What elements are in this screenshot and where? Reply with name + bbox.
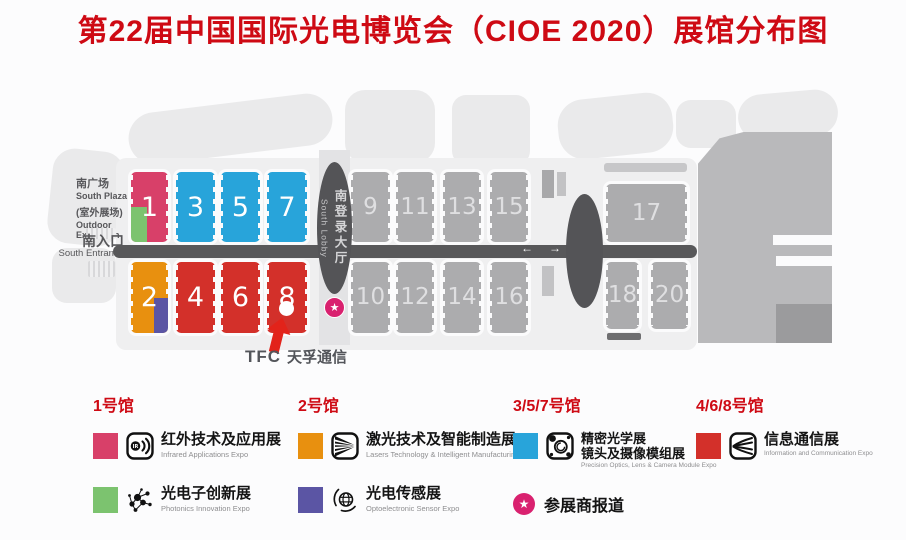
hall-4: 4 [176,262,215,333]
hall-16: 16 [490,262,528,333]
legend-title-en: Optoelectronic Sensor Expo [366,504,459,513]
info-comm-expo-icon [729,432,757,460]
legend-title-cn: 红外技术及应用展 [161,432,281,449]
color-swatch [93,433,118,459]
legend-title-cn: 信息通信展 [764,432,873,449]
south-plaza-label: 南广场 South Plaza [76,178,127,201]
color-swatch [298,487,323,513]
legend-title-en: Information and Communication Expo [764,450,873,457]
hall-20: 20 [651,262,688,329]
hall-17: 17 [606,184,687,242]
legend-item-infrared: IR 红外技术及应用展 Infrared Applications Expo [93,432,308,486]
tfc-logo-name: 天孚通信 [287,346,347,367]
color-swatch [696,433,721,459]
roof-outline-shape [555,90,676,162]
hall-11: 11 [396,172,434,242]
color-swatch [298,433,323,459]
optics-expo-icon [546,432,574,460]
exhibitor-checkin-note: ★ 参展商报道 [513,492,728,516]
legend-item-photonics: 光电子创新展 Photonics Innovation Expo [93,486,308,540]
legend-item-info-comm: 信息通信展 Information and Communication Expo [696,432,906,486]
south-entrance-label: 南入口 South Entrance [40,233,124,260]
color-swatch [513,433,538,459]
legend-column-hall-468: 4/6/8号馆 信息通信展 Information and Communicat… [696,392,906,486]
infrared-expo-icon: IR [126,432,154,460]
hall-2: 2 [131,262,168,333]
hall-18: 18 [606,262,639,329]
legend-heading: 4/6/8号馆 [696,392,906,416]
hall-10: 10 [351,262,390,333]
service-block [557,172,566,196]
building-notch [776,256,832,266]
color-swatch [93,487,118,513]
legend-column-hall-2: 2号馆 激光技术及智能制造展 Lasers Technology & Intel… [298,392,513,540]
legend-title-en: Infrared Applications Expo [161,450,281,459]
svg-text:IR: IR [133,444,139,450]
roof-outline-shape [452,95,530,165]
hall-14: 14 [443,262,481,333]
checkin-star-badge: ★ [324,297,345,318]
legend-title-en: Photonics Innovation Expo [161,504,251,513]
service-block [542,266,554,296]
hall-3: 3 [176,172,215,242]
floor-map: 南广场 South Plaza (室外展场) Outdoor Exhibitio… [0,60,906,385]
legend-item-laser: 激光技术及智能制造展 Lasers Technology & Intellige… [298,432,513,486]
south-lobby: South Lobby 南登录大厅 [317,162,352,294]
south-lobby-label-cn: 南登录大厅 [331,189,350,267]
tfc-logo-mark: TFC [245,347,281,367]
laser-expo-icon [331,432,359,460]
roof-outline-shape [126,91,336,168]
south-lobby-label-en: South Lobby [320,199,330,258]
right-building [698,132,832,343]
corridor-arrow-left-icon: ← [521,240,533,256]
legend-heading: 2号馆 [298,392,513,416]
legend-item-sensor: 光电传感展 Optoelectronic Sensor Expo [298,486,513,540]
service-block [542,170,554,198]
exhibitor-checkin-label: 参展商报道 [544,492,624,516]
legend-title-cn: 光电子创新展 [161,486,251,503]
sensor-expo-icon [331,486,359,514]
service-block [604,163,687,172]
building-dark-section [776,304,832,343]
hall-13: 13 [443,172,481,242]
hall-15: 15 [490,172,528,242]
page-title: 第22届中国国际光电博览会（CIOE 2020）展馆分布图 [0,6,906,50]
star-icon: ★ [513,493,535,515]
corridor-arrow-right-icon: → [549,240,561,256]
hall-9: 9 [351,172,390,242]
hall-12: 12 [396,262,434,333]
tfc-logo: TFC 天孚通信 [245,346,347,367]
building-notch [773,235,832,245]
photonics-expo-icon [126,486,154,514]
hall-7: 7 [267,172,307,242]
main-corridor [113,245,697,258]
legend-column-hall-1: 1号馆 IR 红外技术及应用展 Infrared Applications Ex… [93,392,308,540]
roof-outline-shape [345,90,435,163]
booth-marker-dot [279,301,294,316]
legend-heading: 1号馆 [93,392,308,416]
hall-6: 6 [221,262,260,333]
hall-1: 1 [131,172,168,242]
service-block [607,333,641,340]
legend-title-cn: 光电传感展 [366,486,459,503]
hatched-area [88,261,115,277]
circulation-node [566,194,603,308]
hall-5: 5 [221,172,260,242]
